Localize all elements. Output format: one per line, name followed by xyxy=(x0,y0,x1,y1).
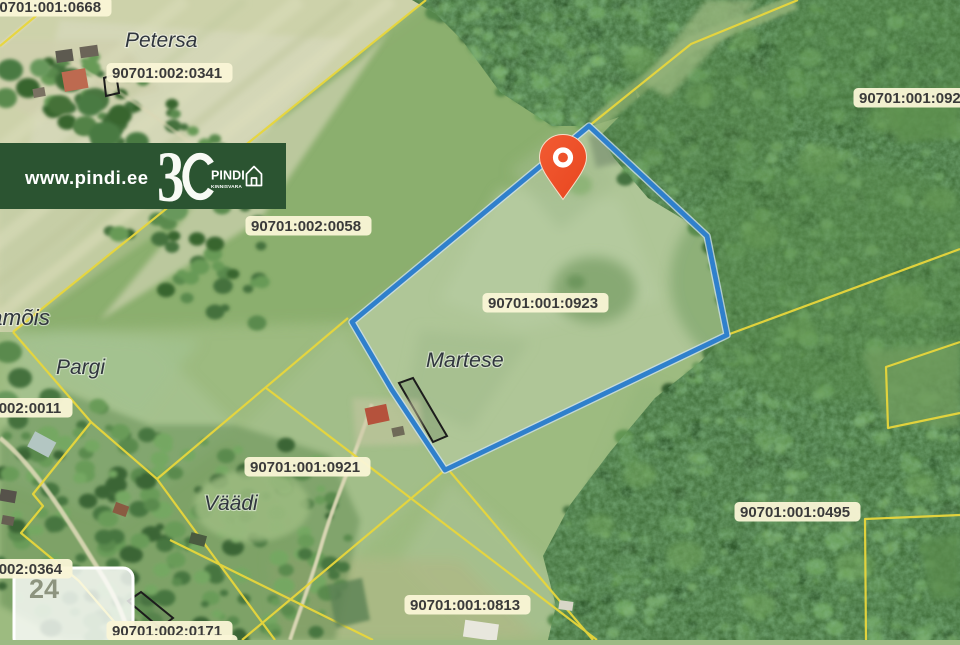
svg-text:PINDI: PINDI xyxy=(211,169,245,183)
svg-text:3: 3 xyxy=(157,137,184,217)
svg-text:Väädi: Väädi xyxy=(204,492,259,515)
svg-text:90701:001:0923: 90701:001:0923 xyxy=(859,90,960,107)
svg-text:90701:001:0923: 90701:001:0923 xyxy=(488,295,598,312)
svg-text:90701:001:0495: 90701:001:0495 xyxy=(740,504,850,521)
svg-text:Petersa: Petersa xyxy=(125,29,197,52)
svg-text:90701:002:0058: 90701:002:0058 xyxy=(251,218,361,235)
svg-text:90701:002:0341: 90701:002:0341 xyxy=(112,65,222,82)
svg-text:90701:001:0668: 90701:001:0668 xyxy=(0,0,101,16)
svg-text:90701:002:0011: 90701:002:0011 xyxy=(0,400,61,417)
svg-text:www.pindi.ee: www.pindi.ee xyxy=(24,167,149,188)
svg-text:Martese: Martese xyxy=(426,348,504,372)
svg-text:Pargi: Pargi xyxy=(56,356,106,379)
svg-text:90701:001:0813: 90701:001:0813 xyxy=(410,597,520,614)
svg-text:KINNISVARA: KINNISVARA xyxy=(211,184,242,190)
svg-text:90701:001:0921: 90701:001:0921 xyxy=(250,459,360,476)
svg-text:90701:002:0364: 90701:002:0364 xyxy=(0,561,63,578)
svg-text:amõis: amõis xyxy=(0,305,50,330)
